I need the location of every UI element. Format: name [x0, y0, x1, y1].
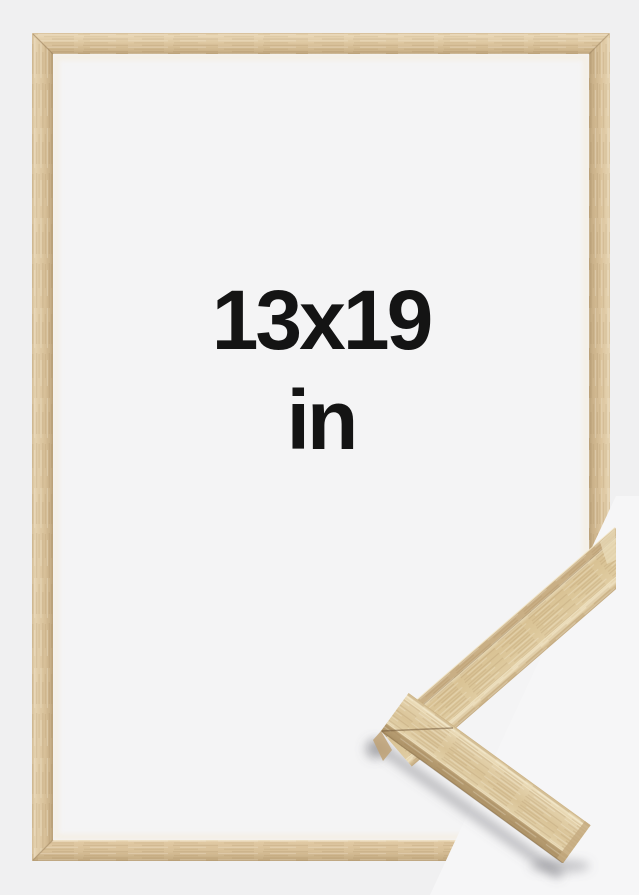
product-image: 13x19 in [0, 0, 639, 895]
size-label-unit: in [53, 370, 589, 470]
size-label: 13x19 in [53, 270, 589, 470]
size-label-dimensions: 13x19 [53, 270, 589, 370]
